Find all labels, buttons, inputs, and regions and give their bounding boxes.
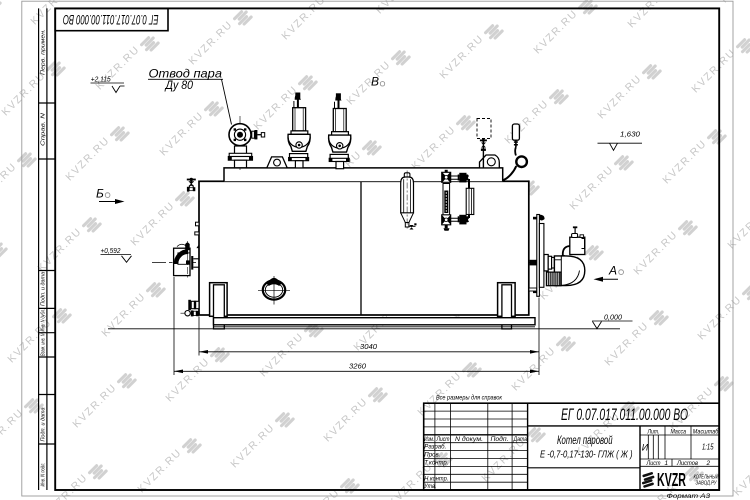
svg-text:KVZR.RU: KVZR.RU — [409, 123, 458, 172]
svg-text:KVZR.RU: KVZR.RU — [257, 330, 306, 379]
svg-text:Н.контр.: Н.контр. — [424, 475, 448, 482]
svg-text:KVZR.RU: KVZR.RU — [35, 225, 84, 274]
svg-text:Инв. N подл.: Инв. N подл. — [41, 463, 47, 487]
svg-text:KVZR.RU: KVZR.RU — [437, 32, 486, 81]
svg-text:KVZR.RU: KVZR.RU — [0, 160, 19, 209]
svg-text:ЗАВОД.РУ: ЗАВОД.РУ — [696, 481, 718, 487]
svg-text:Лист: Лист — [646, 460, 661, 467]
svg-text:KVZR.RU: KVZR.RU — [228, 421, 277, 470]
svg-text:KVZR.RU: KVZR.RU — [595, 72, 644, 121]
svg-text:1:15: 1:15 — [702, 443, 714, 452]
svg-text:KVZR.RU: KVZR.RU — [344, 58, 393, 107]
svg-text:KVZR.RU: KVZR.RU — [602, 319, 651, 368]
svg-text:И: И — [642, 443, 649, 453]
svg-text:Лит.: Лит. — [647, 429, 660, 436]
svg-text:ЕГ 0.07.017.011.00.000 ВО: ЕГ 0.07.017.011.00.000 ВО — [63, 12, 159, 27]
svg-text:1,630: 1,630 — [620, 130, 641, 139]
svg-text:3260: 3260 — [349, 361, 367, 370]
svg-text:KVZR.RU: KVZR.RU — [135, 446, 184, 495]
svg-text:Дата: Дата — [513, 436, 528, 443]
svg-text:Справ. N: Справ. N — [41, 112, 47, 146]
svg-text:Перв. примен.: Перв. примен. — [41, 29, 47, 75]
svg-text:3040: 3040 — [360, 342, 378, 351]
svg-text:Подп. и дата: Подп. и дата — [41, 272, 47, 306]
svg-text:Все размеры для справок: Все размеры для справок — [436, 394, 503, 402]
svg-text:N докум.: N докум. — [455, 435, 483, 443]
svg-text:В: В — [371, 75, 379, 89]
svg-text:KVZR.RU: KVZR.RU — [70, 381, 119, 430]
svg-text:KVZR.RU: KVZR.RU — [293, 486, 342, 500]
svg-text:KVZR.RU: KVZR.RU — [321, 395, 370, 444]
svg-text:2: 2 — [706, 460, 711, 467]
svg-text:Изм.: Изм. — [424, 436, 434, 443]
svg-text:0,000: 0,000 — [604, 312, 623, 321]
svg-text:Подп.: Подп. — [491, 435, 509, 443]
svg-text:Лист: Лист — [436, 436, 450, 443]
svg-text:Подп. и дата: Подп. и дата — [41, 407, 47, 441]
svg-text:KVZR.RU: KVZR.RU — [0, 69, 48, 118]
svg-text:Б: Б — [96, 187, 104, 201]
svg-text:KVZR.RU: KVZR.RU — [0, 406, 26, 455]
svg-text:Пров.: Пров. — [424, 452, 440, 459]
svg-text:KVZR.RU: KVZR.RU — [531, 7, 580, 56]
svg-text:Ду 80: Ду 80 — [164, 78, 194, 92]
svg-text:Т.контр.: Т.контр. — [424, 460, 448, 467]
svg-text:KVZR.RU: KVZR.RU — [631, 228, 680, 277]
svg-text:А: А — [608, 264, 617, 278]
svg-text:KVZR.RU: KVZR.RU — [128, 199, 177, 248]
svg-text:+2,115: +2,115 — [91, 75, 112, 84]
svg-text:1: 1 — [665, 460, 669, 467]
svg-text:Масштаб: Масштаб — [693, 428, 719, 436]
svg-text:Масса: Масса — [671, 429, 687, 436]
svg-text:KVZR.RU: KVZR.RU — [93, 43, 142, 92]
svg-text:KVZR.RU: KVZR.RU — [186, 18, 235, 67]
svg-text:KVZR.RU: KVZR.RU — [731, 449, 750, 498]
svg-text:Взам. инв. N: Взам. инв. N — [41, 333, 47, 356]
svg-text:KVZR.RU: KVZR.RU — [725, 202, 750, 251]
svg-text:Утв.: Утв. — [423, 483, 436, 490]
svg-text:KVZR.RU: KVZR.RU — [625, 0, 674, 30]
svg-text:KVZR.RU: KVZR.RU — [502, 97, 551, 146]
svg-text:KVZR.RU: KVZR.RU — [63, 134, 112, 183]
svg-text:KVZR.RU: KVZR.RU — [567, 163, 616, 212]
svg-text:KVZR.RU: KVZR.RU — [660, 137, 709, 186]
svg-text:KVZR: KVZR — [657, 470, 686, 490]
svg-text:KVZR.RU: KVZR.RU — [163, 355, 212, 404]
svg-text:Инв. N дубл.: Инв. N дубл. — [41, 309, 47, 332]
svg-text:Е -0,7-0,17-130- ГЛЖ ( Ж ): Е -0,7-0,17-130- ГЛЖ ( Ж ) — [540, 449, 633, 461]
svg-text:ЕГ 0.07.017.011.00.000 ВО: ЕГ 0.07.017.011.00.000 ВО — [561, 406, 688, 424]
svg-text:KVZR.RU: KVZR.RU — [157, 109, 206, 158]
svg-text:КОТЕЛЬНЫЙ: КОТЕЛЬНЫЙ — [694, 473, 719, 481]
svg-text:KVZR.RU: KVZR.RU — [279, 0, 328, 42]
svg-text:+0,592: +0,592 — [101, 246, 122, 255]
svg-text:Разраб.: Разраб. — [424, 443, 446, 451]
svg-text:Листов: Листов — [676, 460, 698, 467]
svg-text:KVZR.RU: KVZR.RU — [689, 46, 738, 95]
svg-text:Формат А3: Формат А3 — [667, 493, 711, 500]
svg-text:KVZR.RU: KVZR.RU — [99, 290, 148, 339]
svg-text:Котел паровой: Котел паровой — [557, 433, 613, 447]
